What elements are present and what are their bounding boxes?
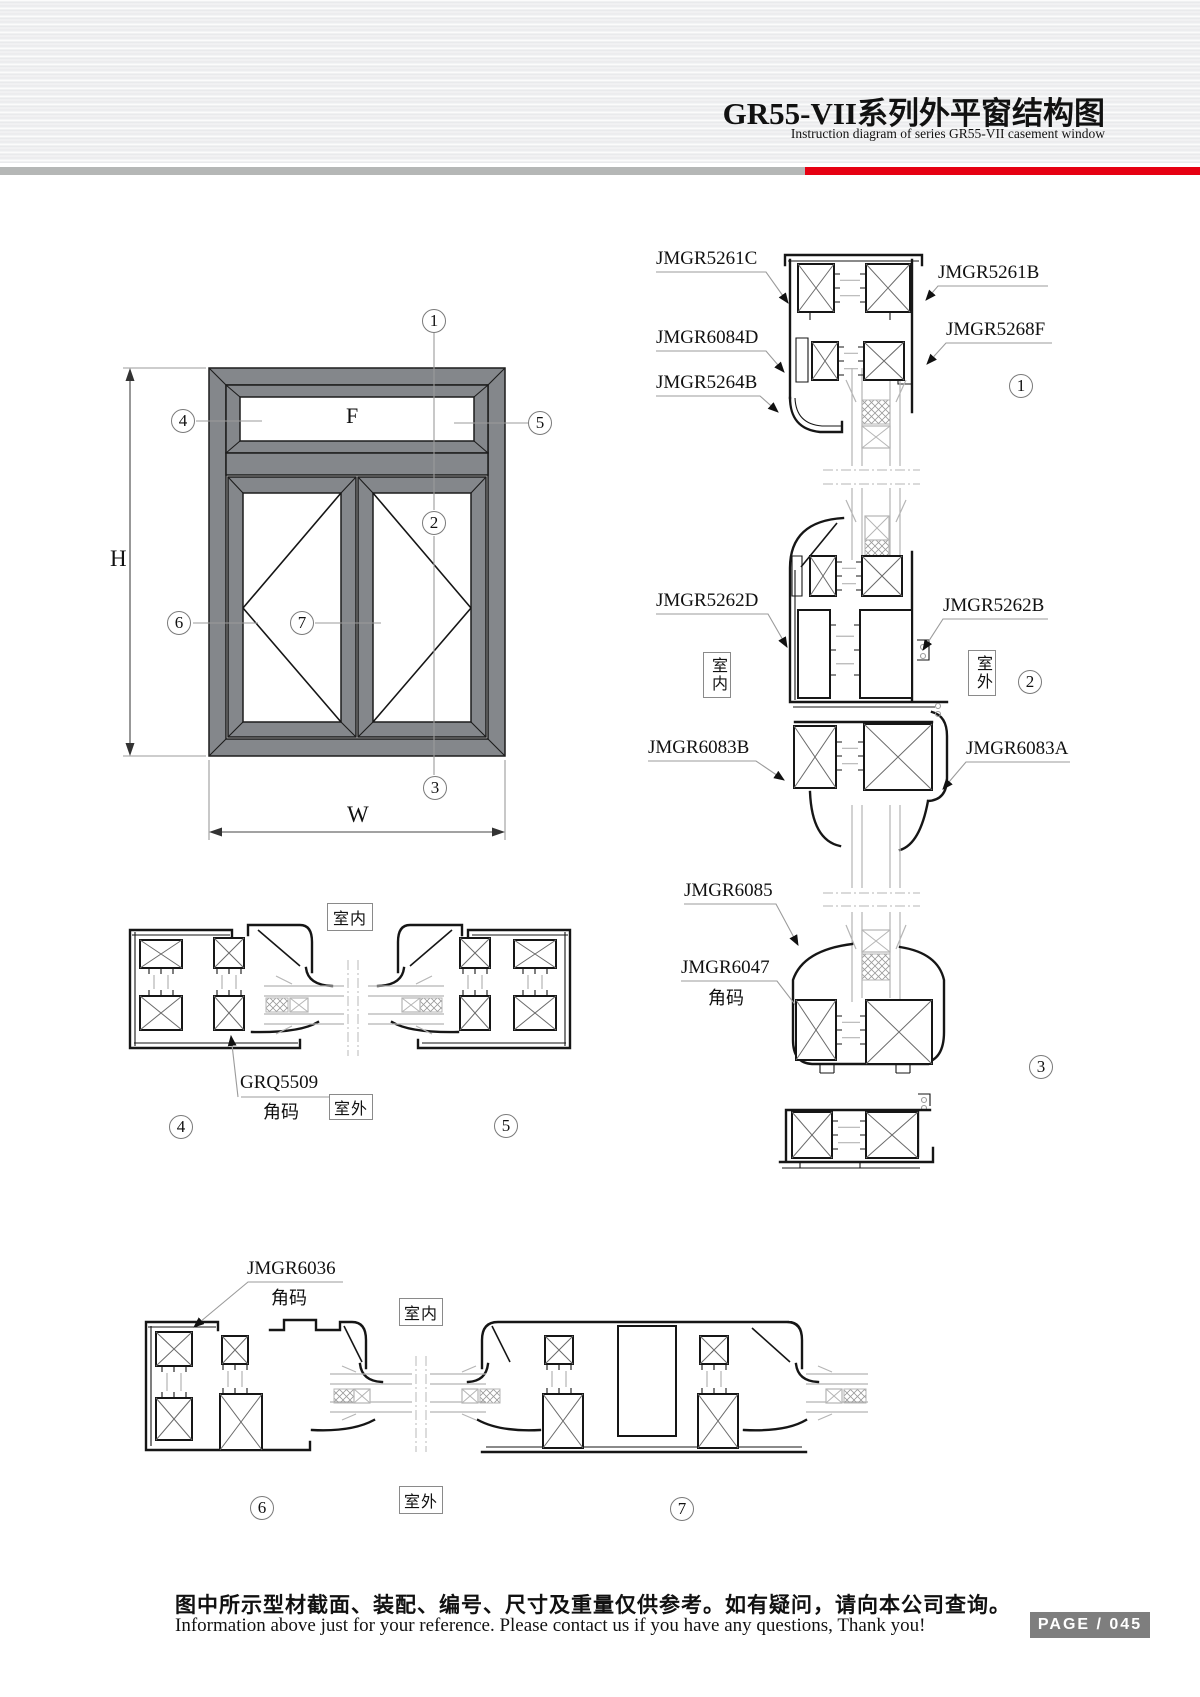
mid-horizontal-section-drawing: [130, 925, 570, 1097]
section-callout-3: 3: [1029, 1055, 1053, 1079]
part-label-jmgr6047: JMGR6047: [681, 957, 770, 979]
section-callout-4: 4: [169, 1115, 193, 1139]
indoor-box-mid: 室内: [327, 903, 373, 931]
callout-4: 4: [171, 409, 195, 433]
indoor-box-vertical: 室内: [703, 652, 731, 698]
part-label-jmgr6036-corner-code: 角码: [271, 1284, 307, 1310]
part-label-jmgr6083b: JMGR6083B: [648, 737, 749, 759]
height-dim-label: H: [110, 546, 127, 572]
part-label-grq5509: GRQ5509: [240, 1072, 318, 1094]
section-callout-6: 6: [250, 1496, 274, 1520]
part-label-jmgr6083a: JMGR6083A: [966, 738, 1068, 760]
outdoor-box-vertical: 室外: [968, 650, 996, 696]
fixed-panel-label: F: [346, 403, 358, 429]
callout-2: 2: [422, 511, 446, 535]
catalog-page: { "header": { "title": "GR55-VII系列外平窗结构图…: [0, 0, 1200, 1697]
part-label-jmgr6084d: JMGR6084D: [656, 327, 758, 349]
section-callout-2: 2: [1018, 670, 1042, 694]
outdoor-box-bottom: 室外: [399, 1486, 443, 1514]
part-label-grq5509-corner-code: 角码: [263, 1098, 299, 1124]
callout-5: 5: [528, 411, 552, 435]
outdoor-box-mid: 室外: [329, 1094, 373, 1120]
indoor-box-bottom: 室内: [399, 1298, 443, 1326]
part-label-jmgr5261b: JMGR5261B: [938, 262, 1039, 284]
part-label-jmgr6036: JMGR6036: [247, 1258, 336, 1280]
part-label-jmgr6085: JMGR6085: [684, 880, 773, 902]
technical-linework: [0, 0, 1200, 1697]
width-dim-label: W: [347, 802, 369, 828]
part-label-jmgr6047-corner-code: 角码: [708, 984, 744, 1010]
part-label-jmgr5262b: JMGR5262B: [943, 595, 1044, 617]
part-label-jmgr5261c: JMGR5261C: [656, 248, 757, 270]
part-label-jmgr5268f: JMGR5268F: [946, 319, 1045, 341]
callout-6: 6: [167, 611, 191, 635]
part-label-jmgr5264b: JMGR5264B: [656, 372, 757, 394]
part-label-jmgr5262d: JMGR5262D: [656, 590, 758, 612]
callout-7: 7: [290, 611, 314, 635]
callout-1: 1: [422, 309, 446, 333]
callout-3: 3: [423, 776, 447, 800]
section-callout-1: 1: [1009, 374, 1033, 398]
section-callout-7: 7: [670, 1497, 694, 1521]
section-callout-5: 5: [494, 1114, 518, 1138]
